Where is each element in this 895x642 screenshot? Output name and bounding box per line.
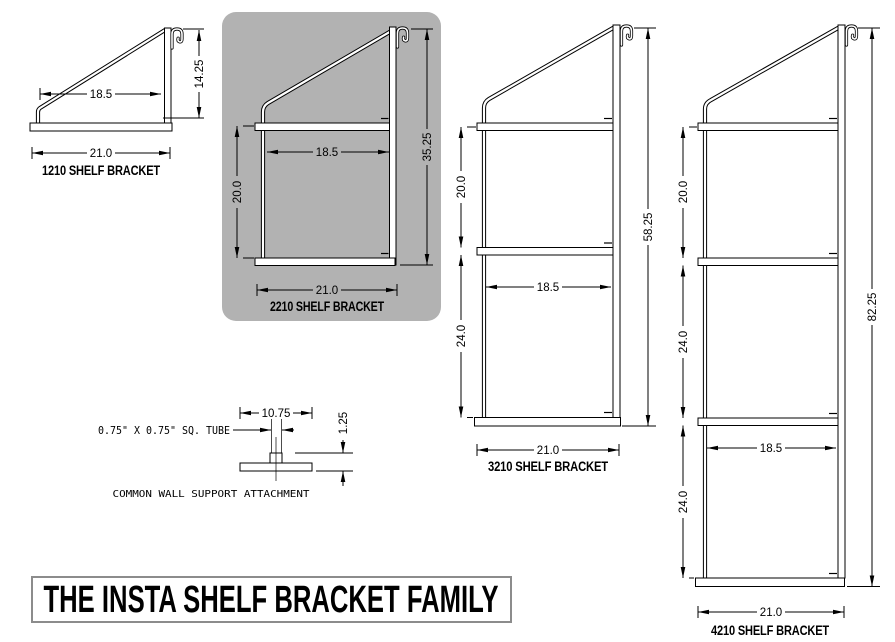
insta-shelf-diagram: 18.5 14.25 21.0 1210 SHELF BRACKET [0, 0, 895, 642]
bracket-4210-base-shelf [696, 578, 845, 587]
bracket-2210-highlight-panel [222, 12, 441, 321]
bracket-4210-upright [838, 25, 845, 578]
svg-text:18.5: 18.5 [316, 147, 338, 159]
bracket-2210-base-shelf [255, 258, 395, 266]
bracket-3210-base-shelf [475, 418, 621, 427]
svg-text:20.0: 20.0 [456, 176, 468, 198]
bracket-3210-upright [613, 25, 620, 418]
svg-text:21.0: 21.0 [90, 148, 112, 160]
bracket-4210-shelf-3 [698, 418, 838, 426]
page-background [0, 0, 895, 642]
page-title: THE INSTA SHELF BRACKET FAMILY [44, 579, 499, 621]
attachment-tube-note: 0.75" X 0.75" SQ. TUBE [98, 425, 230, 437]
svg-text:20.0: 20.0 [232, 181, 244, 203]
bracket-4210-label: 4210 SHELF BRACKET [711, 623, 830, 638]
svg-text:21.0: 21.0 [537, 445, 559, 457]
svg-text:58.25: 58.25 [643, 213, 655, 242]
svg-text:10.75: 10.75 [262, 408, 291, 420]
svg-text:18.5: 18.5 [90, 89, 112, 101]
svg-text:14.25: 14.25 [194, 60, 206, 89]
bracket-1210-upright [165, 28, 172, 123]
title-banner: THE INSTA SHELF BRACKET FAMILY [32, 577, 511, 622]
svg-text:21.0: 21.0 [316, 285, 338, 297]
bracket-2210-shelf-1 [255, 123, 393, 131]
bracket-1210-base-shelf [30, 123, 172, 131]
svg-text:20.0: 20.0 [678, 181, 690, 203]
svg-text:35.25: 35.25 [422, 133, 434, 162]
svg-text:18.5: 18.5 [760, 443, 782, 455]
attachment-caption: COMMON WALL SUPPORT ATTACHMENT [113, 489, 310, 500]
bracket-3210-label: 3210 SHELF BRACKET [488, 459, 609, 474]
bracket-2210-upright [390, 27, 397, 265]
bracket-4210-shelf-1 [698, 123, 838, 131]
svg-text:18.5: 18.5 [537, 282, 559, 294]
bracket-1210-label: 1210 SHELF BRACKET [42, 163, 161, 178]
svg-text:1.25: 1.25 [338, 412, 350, 434]
bracket-3210-shelf-1 [477, 123, 613, 131]
bracket-3210-shelf-2 [477, 248, 613, 256]
bracket-2210: 18.5 20.0 35.25 21.0 2210 SHELF BRACKET [222, 12, 441, 321]
svg-text:24.0: 24.0 [456, 325, 468, 347]
bracket-2210-label: 2210 SHELF BRACKET [270, 299, 385, 314]
svg-text:24.0: 24.0 [678, 491, 690, 513]
bracket-4210-shelf-2 [698, 258, 838, 266]
svg-text:21.0: 21.0 [760, 607, 782, 619]
svg-text:82.25: 82.25 [867, 293, 879, 322]
svg-text:24.0: 24.0 [678, 331, 690, 353]
